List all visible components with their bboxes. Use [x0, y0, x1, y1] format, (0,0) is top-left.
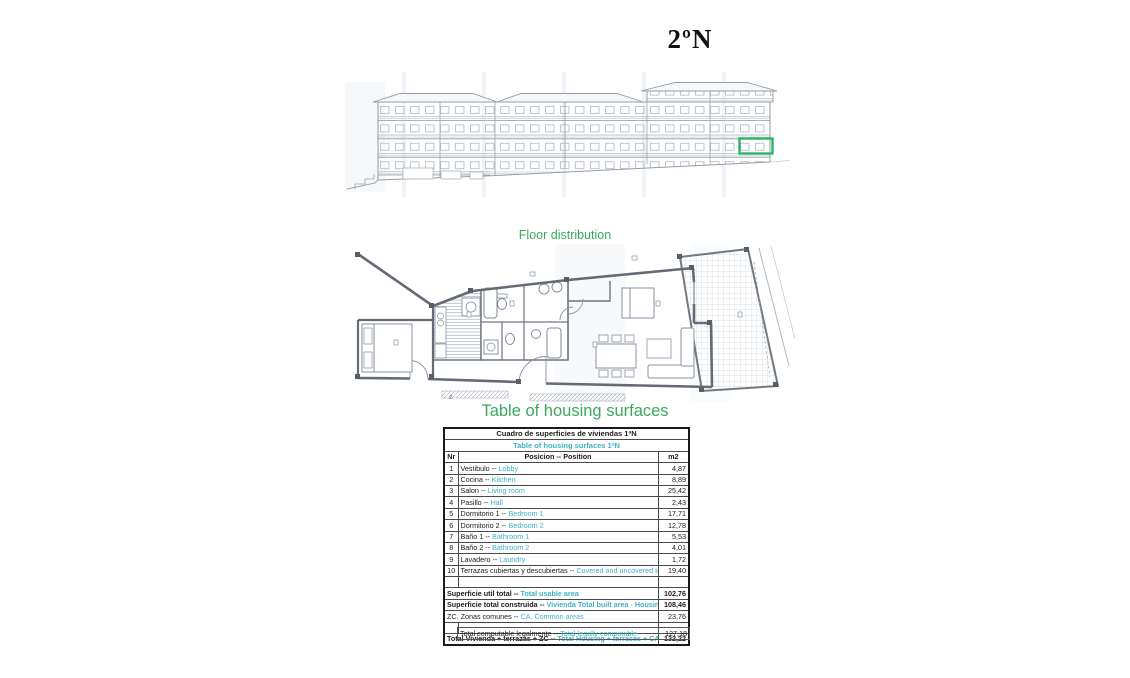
table-row: 4 Pasillo--Hall 2,43: [444, 497, 689, 508]
position-es: Total computable legalmente: [460, 629, 552, 638]
row-number: 4: [444, 497, 458, 508]
row-number: 6: [444, 520, 458, 531]
position-es: Dormitorio 1: [461, 509, 500, 518]
area-value: 2,43: [658, 497, 689, 508]
row-number: 10: [444, 565, 458, 576]
building-elevation-drawing: [345, 72, 790, 197]
position-en: Bedroom 2: [508, 521, 543, 530]
area-value: 108,46: [658, 599, 689, 610]
position-es: Superficie total construida: [447, 600, 538, 609]
bedroom-bed: [362, 324, 412, 372]
col-m2: m2: [658, 451, 689, 462]
area-value: 23,76: [658, 611, 689, 622]
position-en: Bathroom 1: [492, 532, 529, 541]
row-number: 3: [444, 485, 458, 496]
position-en: Living room: [488, 486, 525, 495]
area-value: 8,89: [658, 474, 689, 485]
summary-row-built: Superficie total construida--Vivienda To…: [444, 599, 689, 610]
position-en: Kitchen: [492, 475, 516, 484]
area-value: 17,71: [658, 508, 689, 519]
surfaces-table: Cuadro de superficies de viviendas 1ªN T…: [443, 427, 690, 646]
table-row: 3 Salon--Living room 25,42: [444, 485, 689, 496]
position-es: Pasillo: [461, 498, 482, 507]
row-number: 5: [444, 508, 458, 519]
stair-mark: z: [449, 394, 453, 401]
col-position: Posicion -- Position: [458, 451, 658, 462]
row-number: 9: [444, 554, 458, 565]
table-title-es: Cuadro de superficies de viviendas 1ªN: [444, 428, 689, 440]
position-en: Vivienda Total built area - Housing: [546, 600, 658, 609]
legal-total-table: Total computable legalmente--Total legal…: [457, 627, 690, 640]
position-en: Covered and uncovered terraces: [576, 566, 658, 575]
bedroom2-bed: [622, 288, 654, 318]
position-es: Dormitorio 2: [461, 521, 500, 530]
table-row: 8 Baño 2--Bathroom 2 4,01: [444, 542, 689, 553]
area-value: 127,18: [659, 628, 690, 640]
bathroom-fixtures: [481, 280, 568, 360]
row-number: 2: [444, 474, 458, 485]
table-row: 5 Dormitorio 1--Bedroom 1 17,71: [444, 508, 689, 519]
table-row: 7 Baño 1--Bathroom 1 5,53: [444, 531, 689, 542]
position-es: Baño 2: [461, 543, 484, 552]
position-es: Salon: [461, 486, 479, 495]
area-value: 102,76: [658, 588, 689, 599]
position-en: Bathroom 2: [492, 543, 529, 552]
sofa: [647, 328, 694, 378]
area-value: 1,72: [658, 554, 689, 565]
col-nr: Nr: [444, 451, 458, 462]
dining-table: [596, 335, 636, 377]
position-en: Laundry: [499, 555, 525, 564]
summary-row-usable: Superficie util total--Total usable area…: [444, 588, 689, 599]
position-es: Terrazas cubiertas y descubiertas: [461, 566, 568, 575]
area-value: 4,87: [658, 463, 689, 474]
area-value: 25,42: [658, 485, 689, 496]
position-es: Cocina: [461, 475, 483, 484]
row-number: 7: [444, 531, 458, 542]
position-en: Total usable area: [521, 589, 579, 598]
table-title-en: Table of housing surfaces 1ªN: [444, 440, 689, 451]
table-row: 10 Terrazas cubiertas y descubiertas--Co…: [444, 565, 689, 576]
row-number: 1: [444, 463, 458, 474]
table-row: 2 Cocina--Kitchen 8,89: [444, 474, 689, 485]
kitchen-area: [433, 290, 481, 360]
spacer-row: [444, 577, 689, 588]
position-en: Hall: [490, 498, 502, 507]
table-column-header: Nr Posicion -- Position m2: [444, 451, 689, 462]
table-row: 9 Lavadero--Laundry 1,72: [444, 554, 689, 565]
floor-distribution-label: Floor distribution: [340, 228, 790, 242]
position-en: Bedroom 1: [508, 509, 543, 518]
floor-plan-drawing: z: [350, 244, 795, 402]
position-es: ZC. Zonas comunes: [447, 612, 512, 621]
surfaces-heading: Table of housing surfaces: [350, 402, 800, 421]
area-value: 12,78: [658, 520, 689, 531]
page-title: 2ºN: [560, 24, 820, 55]
area-value: 4,01: [658, 542, 689, 553]
position-es: Baño 1: [461, 532, 484, 541]
position-es: Vestibulo: [461, 464, 490, 473]
building-outline: [378, 91, 773, 180]
position-en: CA. Common areas: [521, 612, 584, 621]
table-row: 1 Vestibulo--Lobby 4,87: [444, 463, 689, 474]
position-en: Total legally computable: [560, 629, 637, 638]
table-row: 6 Dormitorio 2--Bedroom 2 12,78: [444, 520, 689, 531]
area-value: 19,40: [658, 565, 689, 576]
area-value: 5,53: [658, 531, 689, 542]
page: 2ºN: [0, 0, 1130, 678]
row-number: 8: [444, 542, 458, 553]
position-es: Lavadero: [461, 555, 491, 564]
position-en: Lobby: [498, 464, 518, 473]
summary-row-common-areas: ZC. Zonas comunes--CA. Common areas 23,7…: [444, 611, 689, 622]
legal-total-row: Total computable legalmente--Total legal…: [458, 628, 690, 640]
position-es: Superficie util total: [447, 589, 512, 598]
